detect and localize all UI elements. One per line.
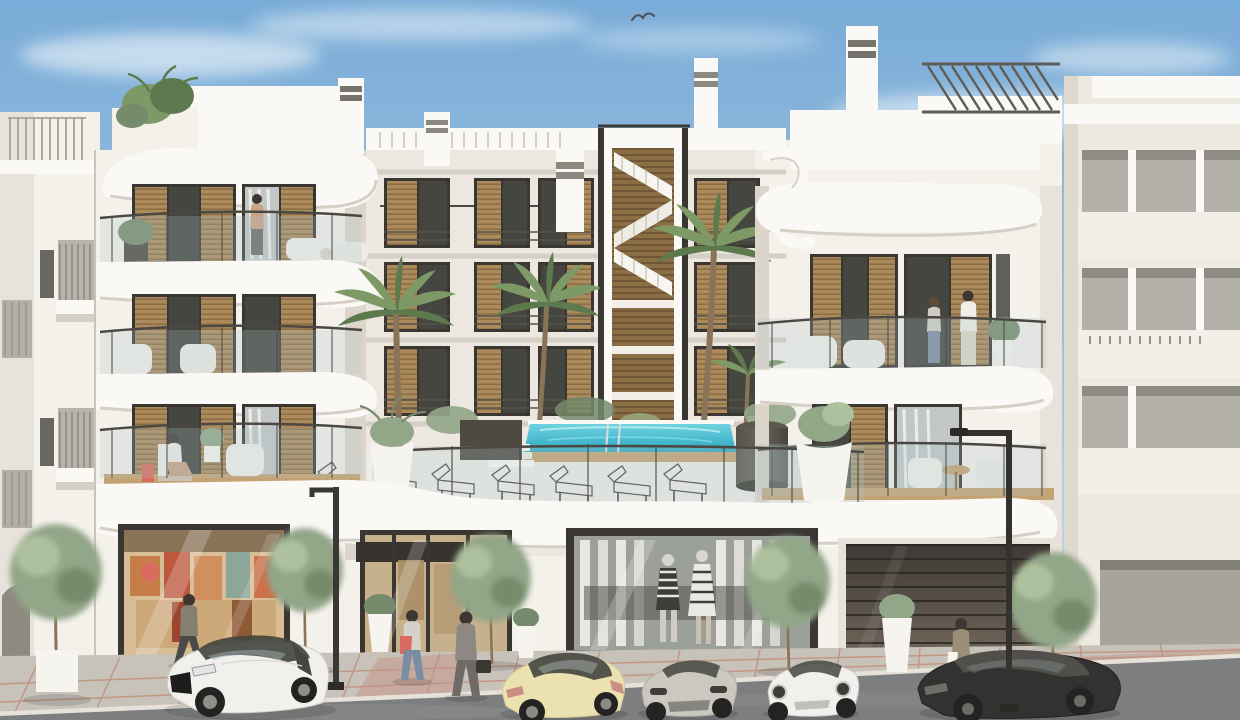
staircase-tower (598, 126, 690, 428)
chimney (846, 26, 878, 112)
loggia (1078, 268, 1240, 378)
headlight (650, 688, 667, 695)
headlight (710, 686, 727, 693)
loggia (1078, 386, 1240, 494)
chimney (556, 148, 584, 232)
window (40, 418, 54, 466)
headlight (836, 682, 850, 696)
chimney (338, 78, 364, 154)
glass-railing (100, 325, 362, 374)
briefcase (476, 660, 491, 673)
architectural-render (0, 0, 1240, 720)
headlight (772, 685, 786, 699)
loggia (1078, 150, 1240, 260)
glass-railing (100, 423, 362, 478)
glass-railing (758, 315, 1046, 368)
chimney (694, 58, 718, 142)
glass-railing (100, 211, 362, 262)
window (40, 250, 54, 298)
chimney (424, 112, 450, 166)
terrace-pot-right (796, 402, 854, 504)
left-neighbor-building (0, 112, 102, 712)
